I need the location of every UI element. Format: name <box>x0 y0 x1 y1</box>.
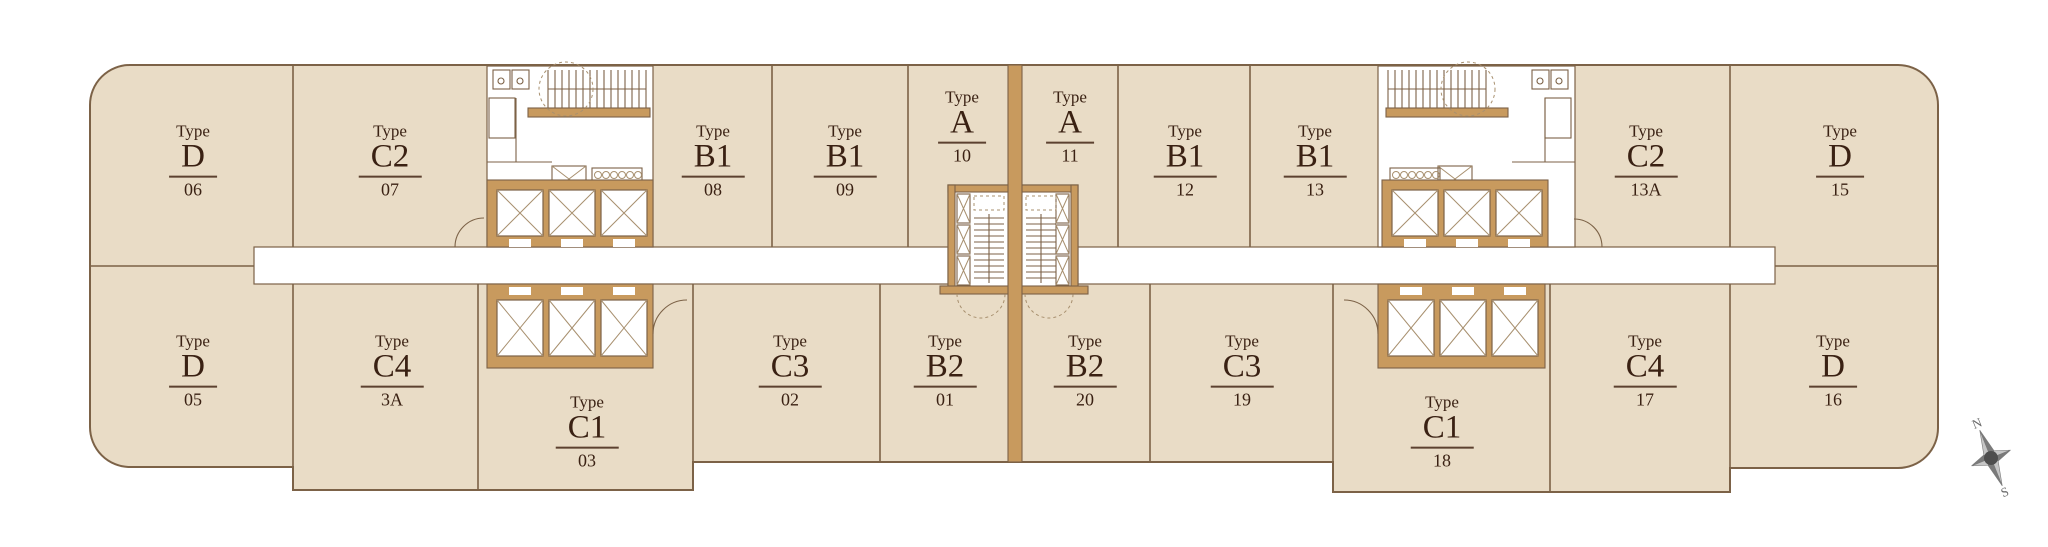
unit-number: 15 <box>1816 181 1864 200</box>
unit-label: Type D 06 <box>169 123 217 200</box>
unit-number: 20 <box>1054 391 1117 410</box>
unit-number: 17 <box>1614 391 1677 410</box>
unit-label: Type C4 3A <box>361 333 424 410</box>
unit-label: Type D 05 <box>169 333 217 410</box>
compass-north-label: N <box>1970 416 1985 432</box>
unit-type-code: D <box>1816 139 1864 177</box>
unit-label: Type B1 08 <box>682 123 745 200</box>
unit-label: Type D 16 <box>1809 333 1857 410</box>
unit-label: Type B1 13 <box>1284 123 1347 200</box>
unit-type-code: C2 <box>359 139 422 177</box>
unit-number: 13A <box>1615 181 1678 200</box>
unit-number: 05 <box>169 391 217 410</box>
unit-number: 10 <box>938 147 986 166</box>
unit-type-code: A <box>1046 105 1094 143</box>
unit-type-code: B1 <box>814 139 877 177</box>
right-core <box>1378 62 1575 247</box>
unit-number: 3A <box>361 391 424 410</box>
unit-type-code: B1 <box>1284 139 1347 177</box>
left-core <box>487 62 653 247</box>
unit-label: Type C3 02 <box>759 333 822 410</box>
unit-label: Type A 10 <box>938 89 986 166</box>
unit-number: 03 <box>556 452 619 471</box>
unit-number: 02 <box>759 391 822 410</box>
unit-label: Type C1 18 <box>1411 394 1474 471</box>
compass-south-label: S <box>1999 484 2011 500</box>
floor-plan-drawing <box>0 0 2048 547</box>
unit-number: 06 <box>169 181 217 200</box>
unit-type-code: B1 <box>1154 139 1217 177</box>
unit-label: Type B2 01 <box>914 333 977 410</box>
right-bottom-lift-bank <box>1378 284 1545 368</box>
unit-label: Type B2 20 <box>1054 333 1117 410</box>
unit-type-code: A <box>938 105 986 143</box>
unit-type-code: B2 <box>1054 349 1117 387</box>
unit-label: Type B1 12 <box>1154 123 1217 200</box>
unit-number: 09 <box>814 181 877 200</box>
unit-type-code: C3 <box>759 349 822 387</box>
unit-number: 18 <box>1411 452 1474 471</box>
unit-label: Type A 11 <box>1046 89 1094 166</box>
unit-type-code: D <box>169 139 217 177</box>
unit-type-code: D <box>1809 349 1857 387</box>
unit-label: Type C2 07 <box>359 123 422 200</box>
unit-type-code: C4 <box>361 349 424 387</box>
unit-label: Type C1 03 <box>556 394 619 471</box>
unit-number: 12 <box>1154 181 1217 200</box>
unit-type-code: D <box>169 349 217 387</box>
unit-type-code: C3 <box>1211 349 1274 387</box>
unit-label: Type C3 19 <box>1211 333 1274 410</box>
unit-label: Type C2 13A <box>1615 123 1678 200</box>
floor-plan: N S Type D 06 Type C2 07 Type B1 08 Type… <box>0 0 2048 547</box>
unit-label: Type B1 09 <box>814 123 877 200</box>
left-bottom-lift-bank <box>487 284 653 368</box>
compass-icon: N S <box>1949 416 2033 500</box>
unit-type-code: C4 <box>1614 349 1677 387</box>
unit-type-code: B1 <box>682 139 745 177</box>
unit-type-code: C1 <box>556 410 619 448</box>
unit-type-code: C1 <box>1411 410 1474 448</box>
unit-number: 11 <box>1046 147 1094 166</box>
unit-type-code: B2 <box>914 349 977 387</box>
unit-number: 07 <box>359 181 422 200</box>
unit-number: 13 <box>1284 181 1347 200</box>
unit-label: Type C4 17 <box>1614 333 1677 410</box>
unit-number: 16 <box>1809 391 1857 410</box>
unit-label: Type D 15 <box>1816 123 1864 200</box>
central-divider-wall <box>1008 65 1022 462</box>
unit-type-code: C2 <box>1615 139 1678 177</box>
compass: N S <box>1949 416 2033 500</box>
unit-number: 19 <box>1211 391 1274 410</box>
unit-number: 01 <box>914 391 977 410</box>
unit-number: 08 <box>682 181 745 200</box>
